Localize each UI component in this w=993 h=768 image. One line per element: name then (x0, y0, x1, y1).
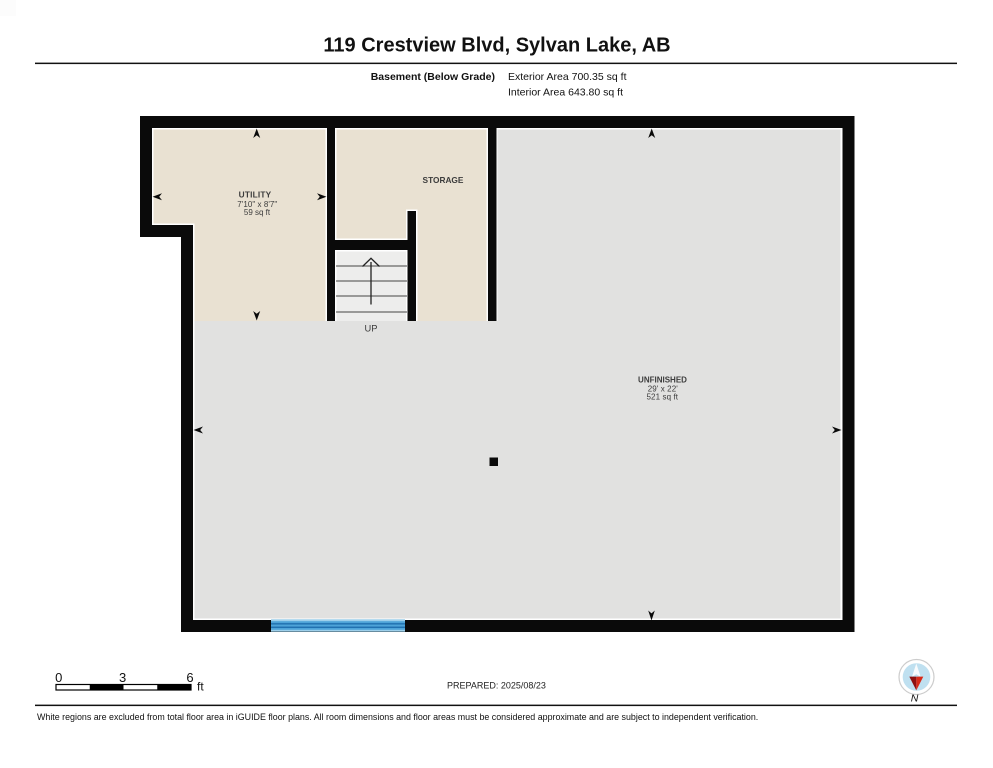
svg-text:521 sq ft: 521 sq ft (647, 393, 679, 402)
svg-text:Interior Area 643.80 sq ft: Interior Area 643.80 sq ft (508, 87, 623, 99)
svg-text:6: 6 (186, 670, 193, 685)
svg-text:Basement (Below Grade): Basement (Below Grade) (371, 71, 495, 83)
svg-text:N: N (911, 693, 919, 705)
svg-text:ft: ft (197, 680, 204, 694)
svg-text:White regions are excluded fro: White regions are excluded from total fl… (37, 712, 758, 722)
svg-text:UP: UP (365, 324, 378, 334)
svg-text:PREPARED: 2025/08/23: PREPARED: 2025/08/23 (447, 681, 546, 691)
svg-text:3: 3 (119, 670, 126, 685)
svg-text:Exterior Area 700.35 sq ft: Exterior Area 700.35 sq ft (508, 71, 627, 83)
svg-text:UNFINISHED: UNFINISHED (638, 376, 687, 385)
svg-text:UTILITY: UTILITY (239, 190, 272, 200)
svg-text:STORAGE: STORAGE (423, 175, 464, 185)
svg-text:59 sq ft: 59 sq ft (244, 208, 271, 217)
svg-text:119 Crestview Blvd, Sylvan Lak: 119 Crestview Blvd, Sylvan Lake, AB (323, 35, 670, 57)
svg-text:0: 0 (55, 670, 62, 685)
